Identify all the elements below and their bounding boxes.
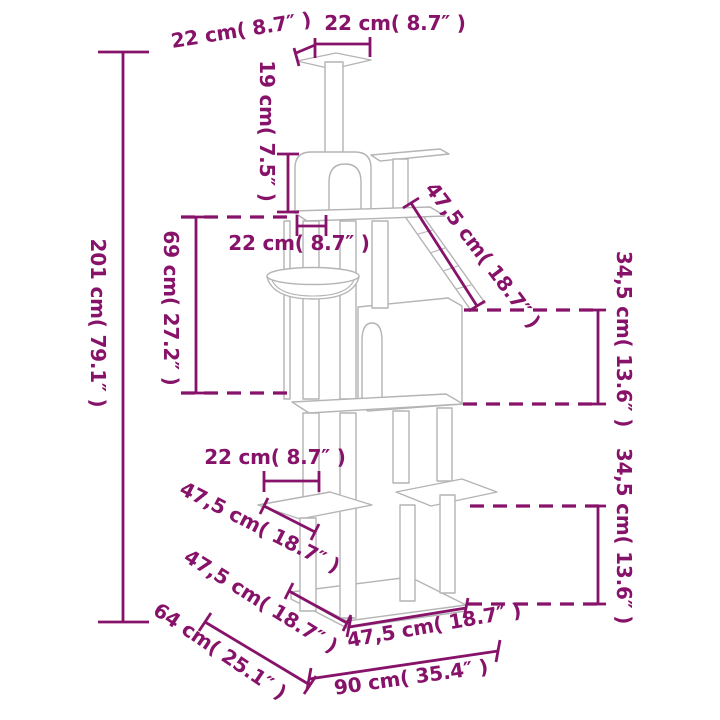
scratching-post (372, 221, 388, 308)
dim-lower-right-height: 34,5 cm( 13.6″ ) (612, 448, 636, 624)
scratching-post (400, 505, 415, 601)
dim-total-height: 201 cm( 79.1″ ) (86, 239, 110, 408)
basket-rim (267, 268, 359, 285)
scratching-post (340, 413, 356, 618)
scratching-post (437, 408, 452, 481)
lower-condo-door (362, 323, 382, 409)
dim-top-width: 22 cm( 8.7″ ) (324, 11, 465, 35)
dim-lower-shelf-width: 22 cm( 8.7″ ) (204, 445, 345, 469)
dim-top-post-height: 19 cm( 7.5″ ) (255, 60, 279, 201)
upper-condo-door (329, 164, 361, 213)
scratching-post (440, 495, 455, 593)
scratching-post (393, 411, 409, 483)
top-post (325, 62, 343, 154)
upper-right-platform (371, 149, 449, 161)
dim-middle-section-height: 69 cm( 27.2″ ) (159, 230, 183, 385)
dim-middle-shelf-depth: 22 cm( 8.7″ ) (228, 231, 369, 255)
diagram-canvas: 22 cm( 8.7″ ) 22 cm( 8.7″ ) 19 cm( 7.5″ … (0, 0, 720, 720)
dim-upper-right-height: 34,5 cm( 13.6″ ) (612, 251, 636, 427)
